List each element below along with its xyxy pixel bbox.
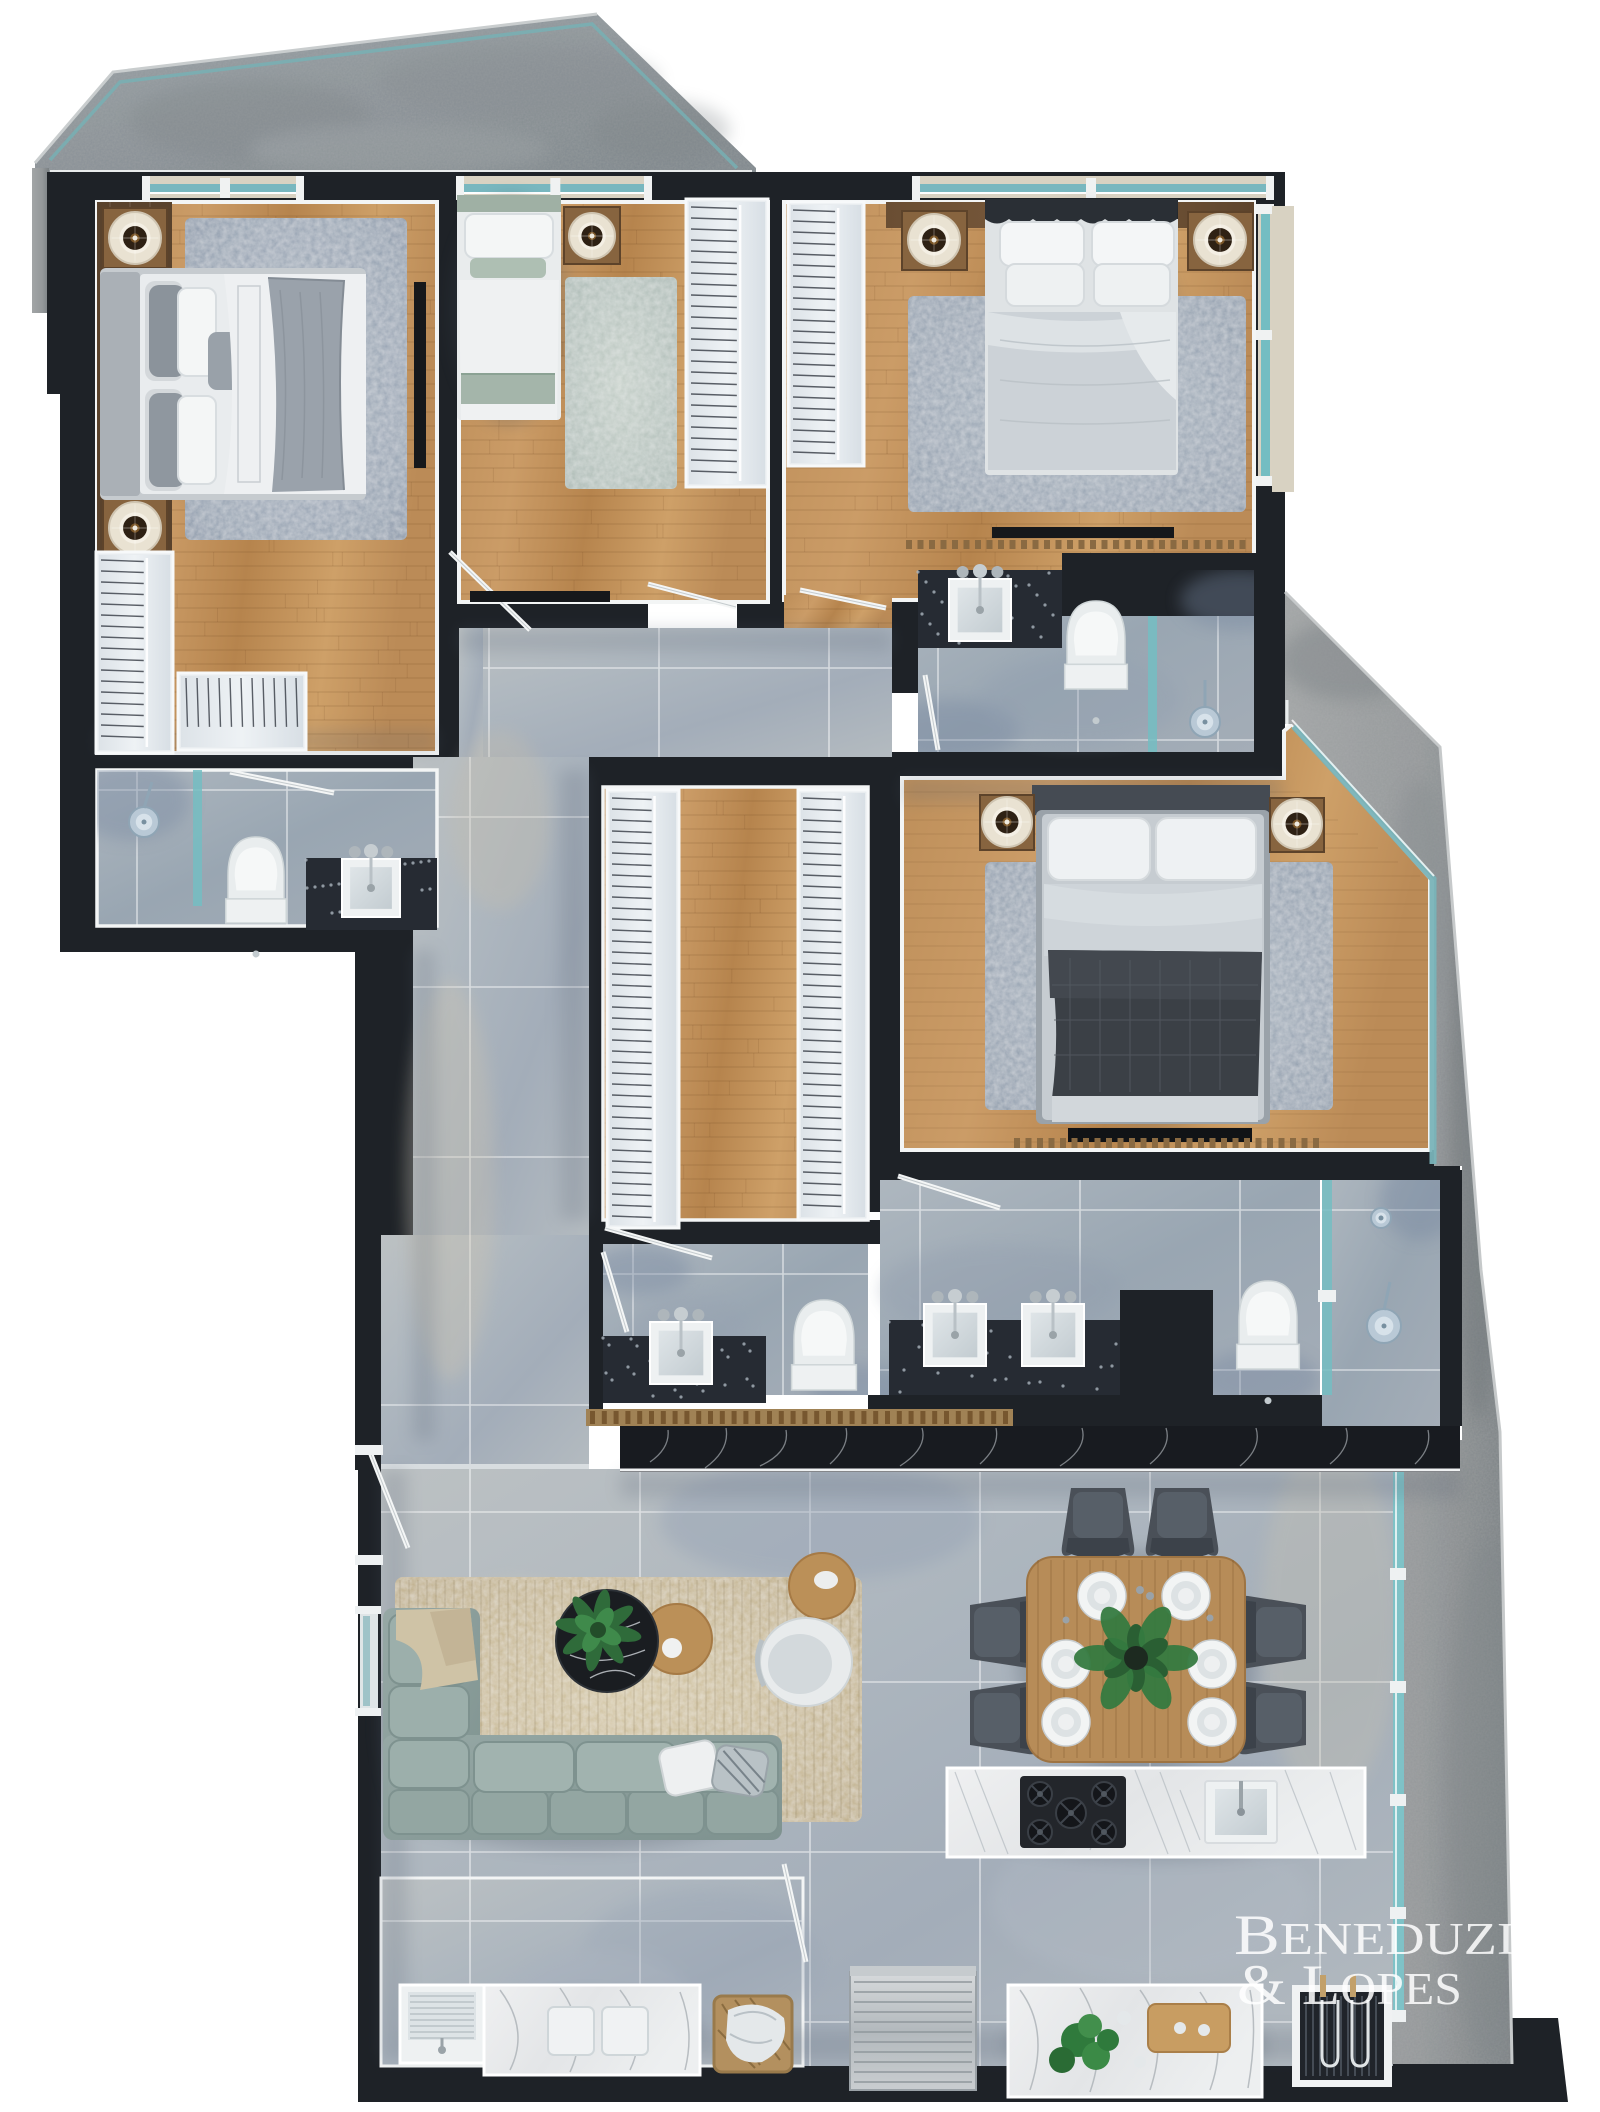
svg-text:& LOPES: & LOPES (1237, 1954, 1462, 2017)
